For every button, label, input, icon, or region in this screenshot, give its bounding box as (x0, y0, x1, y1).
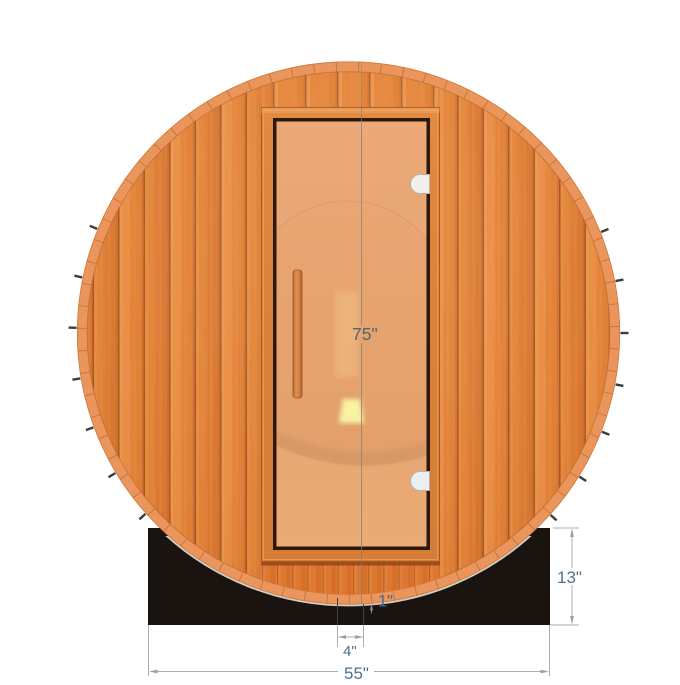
svg-text:75": 75" (352, 324, 378, 344)
svg-text:4": 4" (343, 643, 357, 660)
svg-text:1": 1" (378, 593, 393, 611)
svg-text:13": 13" (557, 568, 582, 587)
svg-text:55": 55" (344, 664, 369, 680)
